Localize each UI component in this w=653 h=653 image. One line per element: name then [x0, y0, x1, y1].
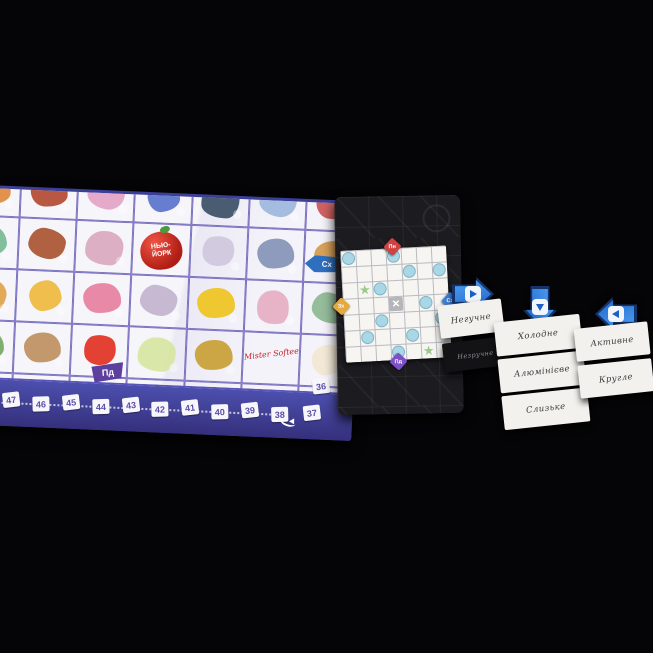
- board-tile-flatiron-building: [17, 217, 76, 271]
- grid-circle-marker: [373, 282, 387, 296]
- birthday-cake-accent: [114, 309, 123, 318]
- board-tile-yellow-stool: [15, 269, 74, 323]
- chrysler-tower-accent: [290, 212, 299, 221]
- grid-star-marker: ★: [359, 283, 371, 297]
- grid-markers: ★★✕: [340, 245, 452, 362]
- board-playfield: НЬЮ-ЙОРКMister Softee: [0, 187, 357, 395]
- word-card[interactable]: Кругле: [577, 358, 653, 399]
- word-card-label: Холодне: [517, 328, 558, 342]
- board-tile-blue-bed: [134, 187, 193, 225]
- arrow-glyph-icon: [470, 290, 481, 298]
- flatiron-building-accent: [59, 254, 68, 263]
- search-grid-card[interactable]: ★★✕ ПнСхПдЗх: [340, 245, 452, 362]
- blue-bed-accent: [175, 207, 184, 216]
- east-edge-badge-label: Сх: [322, 260, 333, 269]
- grid-cross-marker: ✕: [389, 297, 404, 312]
- apple-label: НЬЮ-ЙОРК: [145, 241, 177, 260]
- yellow-stool-accent: [57, 306, 66, 315]
- word-card[interactable]: Холодне: [494, 314, 583, 357]
- brownstone-building-accent: [61, 202, 70, 211]
- man-eating-accent: [116, 257, 125, 266]
- board-tile-birthday-cake: [72, 272, 131, 326]
- orange-cat-accent: [4, 200, 13, 209]
- grid-circle-marker: [406, 328, 420, 342]
- board-tile-newspaper: [189, 225, 248, 279]
- word-card[interactable]: Активне: [574, 321, 651, 362]
- chess-players-accent: [0, 356, 7, 365]
- yellow-taxi-accent: [228, 314, 237, 323]
- track-space-44: 44: [92, 399, 109, 414]
- word-card-label: Активне: [590, 334, 634, 348]
- board-tile-statue-of-liberty: [0, 215, 20, 269]
- arrow-token-right-circle: [465, 286, 481, 302]
- couple-accent: [226, 366, 235, 375]
- game-board[interactable]: НЬЮ-ЙОРКMister Softee Пд Сх 474645444342…: [0, 184, 362, 441]
- board-tile-subway-car: [246, 227, 305, 281]
- board-tile-orange-cat: [0, 187, 22, 217]
- track-space-40: 40: [211, 404, 228, 419]
- board-tile-pigeon: [129, 274, 188, 328]
- board-tile-martini-glass: [127, 326, 186, 380]
- word-card-label: Негучне: [450, 311, 491, 326]
- apple-new-york-icon: НЬЮ-ЙОРК: [138, 229, 184, 272]
- grid-circle-marker: [341, 252, 355, 266]
- track-space-43: 43: [121, 396, 140, 413]
- word-card-label: Слизьке: [526, 402, 566, 416]
- subway-car-accent: [287, 264, 296, 273]
- hotdog-cart-accent: [0, 304, 9, 313]
- word-card[interactable]: Алюмінієве: [497, 351, 586, 394]
- cannoli-accent: [54, 358, 63, 367]
- compass-south-label: Пд: [395, 358, 403, 364]
- board-tile-couple: [184, 329, 243, 383]
- board-tile-doorman: [191, 187, 250, 227]
- grid-circle-marker: [433, 263, 447, 277]
- track-space-37: 37: [303, 404, 322, 421]
- track-space-41: 41: [181, 399, 200, 416]
- word-card-label: Незручне: [457, 348, 494, 360]
- arrow-token-down-circle: [532, 299, 548, 315]
- scene: НЬЮ-ЙОРКMister Softee Пд Сх 474645444342…: [0, 0, 653, 653]
- lunch-box-accent: [285, 316, 294, 325]
- board-tile-apple-new-york: НЬЮ-ЙОРК: [132, 222, 191, 276]
- grid-circle-marker: [403, 264, 417, 278]
- grid-circle-marker: [361, 331, 375, 345]
- pink-shop-accent: [118, 205, 127, 214]
- grid-circle-marker: [419, 296, 433, 310]
- board-tiles: НЬЮ-ЙОРКMister Softee: [0, 187, 357, 395]
- track-space-47: 47: [2, 391, 21, 408]
- track-space-39: 39: [241, 402, 260, 419]
- word-card[interactable]: Слизьке: [501, 387, 590, 430]
- track-space-42: 42: [152, 401, 169, 416]
- south-pennant-label: Пд: [101, 367, 114, 378]
- card-column-3: АктивнеКругле: [574, 321, 653, 398]
- newspaper-accent: [230, 262, 239, 271]
- compass-north-label: Пн: [389, 243, 397, 249]
- word-card-label: Кругле: [598, 372, 633, 386]
- board-tile-chrysler-tower: [248, 187, 307, 230]
- track-space-45: 45: [62, 394, 81, 411]
- board-tile-brownstone-building: [20, 187, 79, 220]
- grid-circle-marker: [375, 314, 389, 328]
- board-tile-cannoli: [13, 321, 72, 375]
- track-space-46: 46: [32, 396, 49, 411]
- grid-star-marker: ★: [423, 344, 435, 358]
- arrow-glyph-icon: [536, 304, 544, 315]
- compass-west-label: Зх: [338, 303, 345, 309]
- board-tile-yellow-taxi: [186, 277, 245, 331]
- arrow-token-left-circle: [608, 306, 624, 322]
- board-tile-pink-shop: [77, 187, 136, 222]
- board-tile-mister-softee-sign: Mister Softee: [241, 331, 300, 385]
- statue-of-liberty-accent: [2, 252, 11, 261]
- martini-glass-accent: [169, 363, 178, 372]
- mister-softee-label: Mister Softee: [243, 346, 299, 361]
- board-tile-lunch-box: [244, 279, 303, 333]
- track-space-36: 36: [312, 378, 331, 395]
- word-card-label: Алюмінієве: [514, 364, 571, 380]
- board-tile-man-eating: [75, 220, 134, 274]
- pigeon-accent: [171, 311, 180, 320]
- arrow-glyph-icon: [609, 310, 620, 318]
- doorman-accent: [232, 210, 241, 219]
